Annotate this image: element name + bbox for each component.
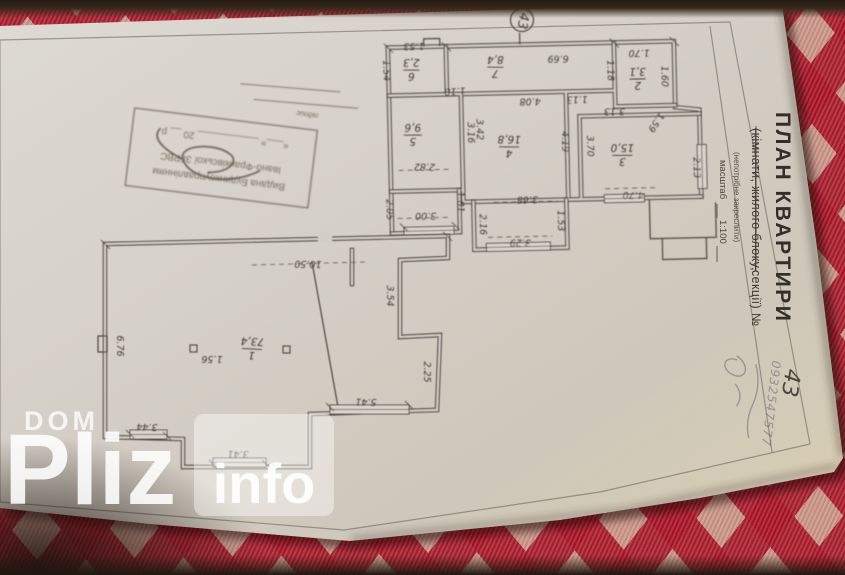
dim-label: 2.13 bbox=[690, 157, 701, 178]
room-area: 8,4 bbox=[487, 53, 504, 65]
dim-label: 6.76 bbox=[114, 335, 125, 356]
dim-label: 1.18 bbox=[604, 60, 615, 81]
scale-label: масштаб bbox=[717, 160, 728, 200]
dim-label: 10.50 bbox=[294, 258, 321, 269]
watermark-pliz: Pliz bbox=[4, 420, 176, 520]
dim-label: 1.56 bbox=[201, 353, 222, 364]
room-area: 9,6 bbox=[404, 121, 421, 133]
dim-label: 1.53 bbox=[403, 40, 424, 51]
room-number: 5 bbox=[409, 135, 416, 147]
dim-label: 2.05 bbox=[383, 199, 394, 220]
subtitle-rest: секції) № bbox=[749, 270, 763, 327]
room-number: 1 bbox=[248, 349, 255, 361]
room-area: 15,0 bbox=[610, 141, 634, 153]
dim-label: 1.70 bbox=[628, 47, 649, 58]
dim-label: 1.81 bbox=[454, 191, 465, 212]
room-number: 6 bbox=[408, 70, 415, 82]
dim-label: 4.70 bbox=[623, 189, 644, 200]
room-area: 73,4 bbox=[240, 334, 264, 347]
dim-label: 3.13 bbox=[604, 105, 625, 116]
dim-label: 4.19 bbox=[559, 131, 570, 152]
dim-label: 1.53 bbox=[555, 210, 566, 231]
photo-scene: 1.53 1.54 1.18 1.18 6.69 1.70 1.60 1.13 … bbox=[0, 0, 845, 575]
watermark-info: info bbox=[213, 455, 316, 516]
room-area: 16,8 bbox=[497, 133, 521, 145]
table-edge-top bbox=[0, 0, 845, 18]
dim-label: 4.08 bbox=[519, 95, 540, 106]
dim-label: 2.82 bbox=[414, 161, 435, 172]
room-area: 2,3 bbox=[403, 56, 420, 68]
form-note: (непотрібне закреслити) bbox=[732, 152, 741, 242]
room-area: 3,1 bbox=[629, 65, 646, 77]
dim-label: 6.69 bbox=[547, 53, 568, 64]
dim-label: 3.29 bbox=[510, 237, 531, 248]
room-number: 2 bbox=[634, 79, 641, 91]
dim-label: 3.42 bbox=[474, 119, 485, 140]
dim-label: 2.25 bbox=[421, 361, 432, 382]
dim-label: 1.13 bbox=[566, 93, 588, 105]
dim-label: 3.54 bbox=[384, 285, 395, 306]
dim-label: 1.60 bbox=[658, 66, 669, 87]
table-edge-bottom bbox=[0, 555, 845, 575]
dim-label: 5.41 bbox=[355, 396, 376, 407]
dim-label: 2.16 bbox=[477, 214, 488, 235]
dim-label: 3.00 bbox=[415, 210, 436, 221]
room-number: 4 bbox=[506, 147, 513, 159]
dim-label: 1.18 bbox=[444, 85, 466, 97]
scale-value: 1:100 bbox=[717, 220, 728, 244]
page-title: ПЛАН КВАРТИРИ bbox=[771, 112, 794, 323]
dim-label: 1.54 bbox=[380, 60, 391, 81]
wall-gap bbox=[318, 231, 332, 242]
room-number: 7 bbox=[492, 67, 499, 79]
dim-label: 3.70 bbox=[584, 135, 595, 156]
watermark-info-box: info bbox=[194, 414, 334, 516]
dim-label: 3.68 bbox=[517, 193, 538, 204]
room-number: 3 bbox=[619, 155, 626, 167]
